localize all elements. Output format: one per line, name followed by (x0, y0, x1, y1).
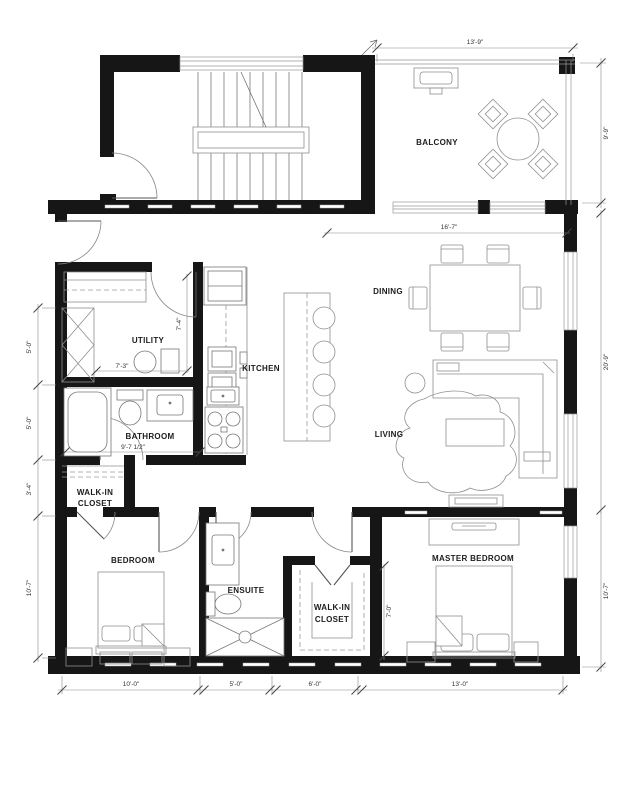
bedroom-furniture (66, 572, 190, 666)
toilet (117, 390, 143, 425)
ensuite-vanity (206, 523, 239, 585)
balcony-slider-window (393, 202, 545, 213)
cooktop (205, 407, 243, 453)
svg-text:6'-0": 6'-0" (309, 681, 323, 688)
bathroom-vanity (147, 390, 193, 421)
svg-text:16'-7": 16'-7" (441, 224, 458, 231)
svg-text:13'-0": 13'-0" (452, 681, 469, 688)
living-label: LIVING (375, 430, 403, 439)
floor-plan-svg: BALCONY DINING KITCHEN UTILITY BATHROOM … (0, 0, 635, 800)
stair-up-arrow (362, 40, 377, 55)
dim-great-room-depth: 20'-9" (597, 209, 611, 515)
living-furniture (396, 360, 557, 507)
master-bedroom-furniture (407, 519, 538, 662)
shower (206, 618, 284, 656)
walk-in-closet1-label-line1: WALK-IN (77, 488, 113, 497)
entry-closet (64, 272, 146, 302)
patio-chairs (478, 99, 558, 179)
bbq-grill (414, 68, 458, 94)
floor-lamp (405, 373, 425, 393)
bar-stool (313, 405, 335, 427)
bar-stool (313, 307, 335, 329)
stairwell-door (112, 153, 157, 198)
utility-fixtures (134, 349, 179, 373)
kitchen-sink (207, 387, 239, 405)
svg-text:3'-4": 3'-4" (26, 482, 33, 496)
bathtub (64, 388, 111, 456)
kitchen-label: KITCHEN (242, 364, 280, 373)
walk-in-closet2-label-line2: CLOSET (315, 615, 349, 624)
dining-chairs (409, 245, 541, 351)
svg-text:20'-9": 20'-9" (603, 353, 610, 370)
balcony-label: BALCONY (416, 138, 458, 147)
master-dresser (429, 519, 519, 545)
dining-furniture (409, 245, 541, 351)
kitchen-fixtures (203, 267, 247, 455)
svg-text:7'-4": 7'-4" (176, 317, 183, 331)
svg-text:10'-0": 10'-0" (123, 681, 140, 688)
stair-landing-rail (193, 127, 309, 153)
washer (134, 351, 156, 373)
balcony-furniture (414, 68, 558, 179)
bedroom-door (159, 512, 199, 552)
ensuite-toilet (206, 592, 241, 616)
svg-text:5'-0": 5'-0" (26, 340, 33, 354)
dryer (161, 349, 179, 373)
right-wall-windows (564, 252, 577, 578)
svg-text:7'-3": 7'-3" (116, 363, 130, 370)
dining-table (430, 265, 520, 331)
bedroom-label: BEDROOM (111, 556, 155, 565)
stair-direction-line (241, 72, 266, 127)
svg-text:9'-9": 9'-9" (603, 126, 610, 140)
dim-master-depth: 10'-7" (582, 512, 610, 672)
svg-text:10'-7": 10'-7" (26, 579, 33, 596)
svg-text:5'-0": 5'-0" (230, 681, 244, 688)
coffee-table (446, 419, 504, 446)
bar-stool (313, 374, 335, 396)
media-console (449, 495, 503, 507)
stair-window (180, 57, 303, 70)
dining-label: DINING (373, 287, 403, 296)
svg-text:13'-9": 13'-9" (467, 39, 484, 46)
dim-bottom-row: 10'-0" 5'-0" 6'-0" 13'-0" (58, 676, 568, 695)
master-bedroom-label: MASTER BEDROOM (432, 554, 514, 563)
patio-table (497, 118, 539, 160)
kitchen-island (284, 293, 335, 441)
bar-stool (313, 341, 335, 363)
walk-in-closet2-label-line1: WALK-IN (314, 603, 350, 612)
master-bed (433, 566, 515, 658)
svg-text:7'-0": 7'-0" (386, 604, 393, 618)
dim-balcony-width: 13'-9" (372, 39, 578, 62)
walk-in-closet1 (62, 466, 124, 477)
svg-text:10'-7": 10'-7" (603, 582, 610, 599)
bathroom-label: BATHROOM (126, 432, 175, 441)
balcony-railing (375, 60, 575, 205)
dim-balcony-depth: 9'-9" (580, 58, 610, 208)
dim-left-column: 5'-0" 5'-0" 3'-4" 10'-7" (26, 304, 56, 663)
walk-in-closet1-label-line2: CLOSET (78, 499, 112, 508)
ensuite-label: ENSUITE (228, 586, 265, 595)
utility-label: UTILITY (132, 336, 165, 345)
bedroom-bed (96, 572, 166, 654)
area-rug (396, 391, 516, 493)
walk-in-closet2-double-doors (315, 565, 350, 585)
entry-door (58, 221, 101, 264)
fridge (204, 267, 246, 305)
master-bedroom-door (312, 512, 352, 552)
utility-door (151, 272, 196, 317)
svg-text:9'-7 1/2": 9'-7 1/2" (121, 444, 145, 451)
dim-great-room-width: 16'-7" (323, 224, 572, 238)
svg-text:5'-0": 5'-0" (26, 416, 33, 430)
